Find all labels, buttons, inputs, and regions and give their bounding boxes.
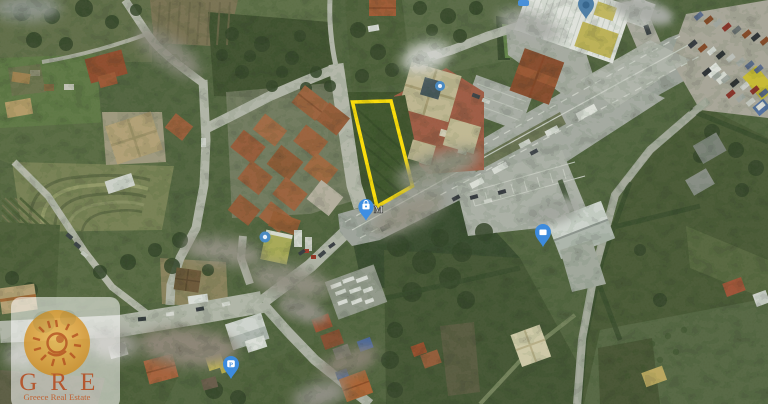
svg-text:M: M xyxy=(374,205,384,216)
svg-text:P: P xyxy=(229,362,233,369)
svg-text:Greece Real Estate: Greece Real Estate xyxy=(24,392,91,402)
